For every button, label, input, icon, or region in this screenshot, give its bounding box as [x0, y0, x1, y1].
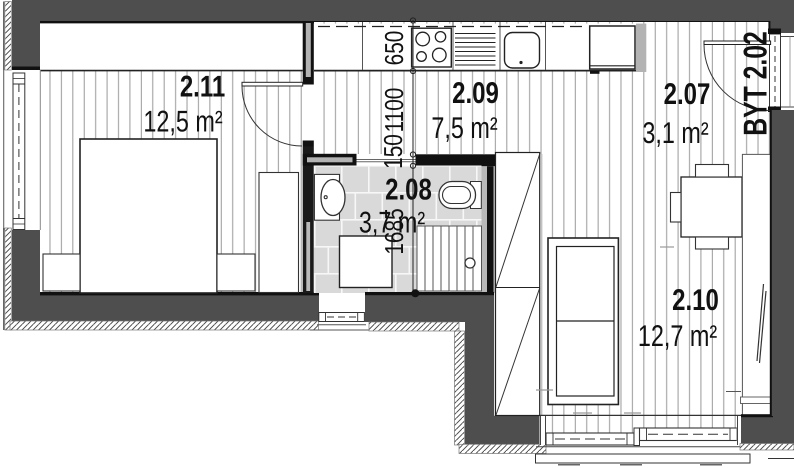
svg-text:12,7 m²: 12,7 m²: [638, 320, 717, 353]
svg-text:1685: 1685: [379, 208, 409, 254]
svg-text:3,1 m²: 3,1 m²: [642, 117, 708, 150]
svg-text:150: 150: [378, 134, 408, 169]
svg-text:BYT 2.02: BYT 2.02: [737, 31, 774, 136]
svg-text:1100: 1100: [379, 88, 409, 133]
svg-text:650: 650: [379, 31, 409, 66]
svg-text:2.10: 2.10: [672, 284, 719, 317]
svg-text:12,5 m²: 12,5 m²: [143, 106, 222, 139]
svg-text:2.11: 2.11: [180, 71, 225, 104]
svg-text:7,5 m²: 7,5 m²: [431, 112, 497, 145]
svg-text:2.09: 2.09: [452, 77, 499, 110]
svg-text:2.08: 2.08: [385, 174, 432, 207]
svg-text:2.07: 2.07: [664, 78, 711, 111]
